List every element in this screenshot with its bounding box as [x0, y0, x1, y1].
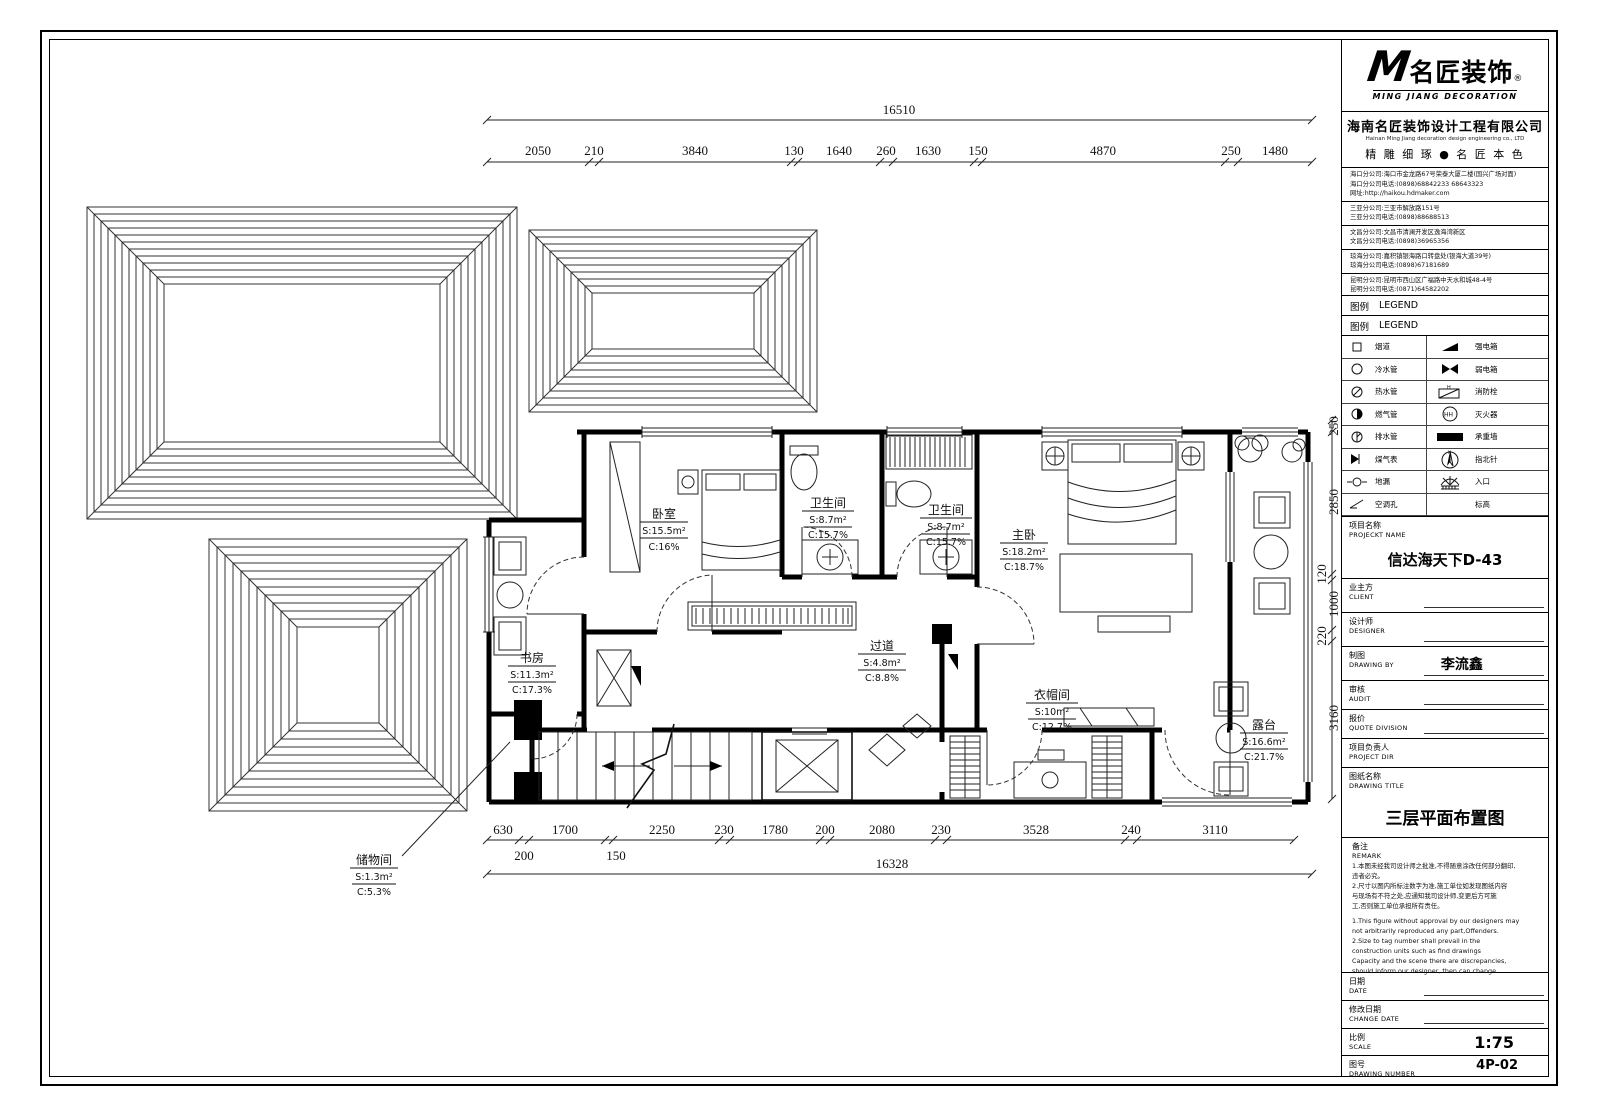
- sheet-outer-frame: 卧室 S:15.5m² C:16% 卫生间 S:8.7m² C:15.7% 卫生…: [40, 30, 1558, 1086]
- field-label-en: CHANGE DATE: [1349, 1015, 1548, 1023]
- field-label-en: DESIGNER: [1349, 627, 1548, 635]
- svg-text:C:8.8%: C:8.8%: [865, 673, 899, 684]
- branch-line: 琼海分公司电话:(0898)67181689: [1350, 261, 1544, 271]
- logo-name: 名匠装饰: [1409, 53, 1513, 89]
- legend-label: 消防栓: [1472, 381, 1548, 404]
- field-label-en: PROJECT DIR: [1349, 753, 1548, 761]
- svg-text:1630: 1630: [915, 143, 941, 158]
- ac-hole-icon: [1342, 494, 1372, 517]
- legend-header-2: 图例 LEGEND: [1342, 316, 1548, 336]
- svg-text:2050: 2050: [525, 143, 551, 158]
- branch-line: 文昌分公司电话:(0898)36965356: [1350, 237, 1544, 247]
- remark-label-en: REMARK: [1352, 852, 1548, 860]
- entrance-icon: [1426, 471, 1472, 494]
- legend-label-cn: 图例: [1350, 319, 1369, 333]
- svg-text:260: 260: [876, 143, 896, 158]
- branch-line: 海口分公司:海口市金龙路67号荣泰大厦二楼(国兴广场对面): [1350, 170, 1544, 180]
- svg-text:2850: 2850: [1326, 489, 1341, 515]
- branch-line: 昆明分公司电话:(0871)64582202: [1350, 285, 1544, 295]
- svg-text:4870: 4870: [1090, 143, 1116, 158]
- field-label-cn: 业主方: [1349, 582, 1548, 593]
- field-client: 业主方 CLIENT: [1342, 579, 1548, 613]
- svg-text:200: 200: [514, 848, 534, 863]
- svg-text:220: 220: [1314, 626, 1329, 646]
- svg-text:3528: 3528: [1023, 822, 1049, 837]
- svg-text:150: 150: [606, 848, 626, 863]
- weak-electric-box-icon: [1426, 359, 1472, 382]
- hot-water-pipe-icon: [1342, 381, 1372, 404]
- svg-text:1640: 1640: [826, 143, 852, 158]
- elevator: [762, 728, 852, 800]
- corridor-rugs: [869, 714, 931, 766]
- svg-text:C:15.7%: C:15.7%: [808, 530, 848, 541]
- svg-text:3160: 3160: [1326, 705, 1341, 731]
- elevation-mark-icon: [1426, 494, 1472, 517]
- svg-text:1000: 1000: [1326, 591, 1341, 617]
- field-label-cn: 图号: [1349, 1059, 1548, 1070]
- svg-text:230: 230: [714, 822, 734, 837]
- svg-text:C:21.7%: C:21.7%: [1244, 752, 1284, 763]
- svg-text:储物间: 储物间: [356, 852, 392, 867]
- svg-text:衣帽间: 衣帽间: [1034, 687, 1070, 702]
- svg-text:HH: HH: [1444, 412, 1453, 419]
- field-label-cn: 项目负责人: [1349, 742, 1548, 753]
- title-block: M 名匠装饰 ® MING JIANG DECORATION 海南名匠装饰设计工…: [1341, 40, 1548, 1076]
- branch-line: 文昌分公司:文昌市清澜开发区逸海湾新区: [1350, 228, 1544, 238]
- field-label-cn: 图纸名称: [1349, 771, 1548, 782]
- field-label-cn: 报价: [1349, 713, 1548, 724]
- legend-label: 热水管: [1372, 381, 1426, 404]
- svg-text:卫生间: 卫生间: [928, 503, 964, 517]
- field-label-en: PROJECKT NAME: [1349, 531, 1548, 539]
- branch-line: 网址:http://haikou.hdmaker.com: [1350, 189, 1544, 199]
- staircase: [539, 724, 752, 808]
- company-name-en: Hainan Ming Jiang decoration design engi…: [1342, 136, 1548, 142]
- field-label-cn: 比例: [1349, 1032, 1548, 1043]
- svg-text:250: 250: [1221, 143, 1241, 158]
- field-designer: 设计师 DESIGNER: [1342, 613, 1548, 647]
- legend-label: 灭火器: [1472, 404, 1548, 427]
- branch-offices: 海口分公司:海口市金龙路67号荣泰大厦二楼(国兴广场对面) 海口分公司电话:(0…: [1342, 168, 1548, 296]
- svg-text:书房: 书房: [520, 650, 544, 665]
- company-info: 海南名匠装饰设计工程有限公司 Hainan Ming Jiang decorat…: [1342, 112, 1548, 168]
- ceiling-motif-top: [529, 230, 817, 412]
- svg-text:S:18.2m²: S:18.2m²: [1002, 547, 1046, 558]
- company-slogan: 精 雕 细 琢 ● 名 匠 本 色: [1342, 146, 1548, 162]
- company-logo: M 名匠装饰 ® MING JIANG DECORATION: [1342, 40, 1548, 112]
- dim-right: 250 2850 120 1000 220 3160: [1314, 416, 1341, 803]
- cloakroom-furniture: [950, 736, 1122, 798]
- field-label-en: DRAWING NUMBER: [1349, 1070, 1548, 1078]
- svg-text:N: N: [1448, 450, 1451, 455]
- bathroom1-fixtures: [790, 446, 858, 574]
- field-audit: 审核 AUDIT: [1342, 681, 1548, 710]
- project-name-value: 信达海天下D-43: [1342, 549, 1548, 570]
- legend-label: 空调孔: [1372, 494, 1426, 517]
- gas-pipe-icon: [1342, 404, 1372, 427]
- drawing-title-value: 三层平面布置图: [1342, 804, 1548, 829]
- field-label-cn: 设计师: [1349, 616, 1548, 627]
- svg-text:240: 240: [1121, 822, 1141, 837]
- field-label-en: DRAWING TITLE: [1349, 782, 1548, 790]
- svg-text:S:8.7m²: S:8.7m²: [927, 522, 965, 533]
- strong-electric-box-icon: [1426, 336, 1472, 359]
- branch-group: 三亚分公司:三亚市解放路151号 三亚分公司电话:(0898)88688513: [1342, 202, 1548, 226]
- field-label-en: CLIENT: [1349, 593, 1548, 601]
- svg-text:150: 150: [968, 143, 988, 158]
- registered-mark-icon: ®: [1513, 74, 1522, 84]
- svg-text:2250: 2250: [649, 822, 675, 837]
- svg-text:120: 120: [1314, 564, 1329, 584]
- branch-line: 琼海分公司:嘉积镇银海路口转盘处(银海大道39号): [1350, 252, 1544, 262]
- remark-label-cn: 备注: [1352, 841, 1548, 852]
- svg-text:S:16.6m²: S:16.6m²: [1242, 737, 1286, 748]
- flue-icon: [1342, 336, 1372, 359]
- legend-label: 指北针: [1472, 449, 1548, 472]
- svg-text:3110: 3110: [1202, 822, 1228, 837]
- cold-water-pipe-icon: [1342, 359, 1372, 382]
- legend-label: 承重墙: [1472, 426, 1548, 449]
- svg-text:C:5.3%: C:5.3%: [357, 887, 391, 898]
- field-quote: 报价 QUOTE DIVISION: [1342, 710, 1548, 739]
- branch-line: 三亚分公司电话:(0898)88688513: [1350, 213, 1544, 223]
- field-label-en: DATE: [1349, 987, 1548, 995]
- sheet-inner-frame: 卧室 S:15.5m² C:16% 卫生间 S:8.7m² C:15.7% 卫生…: [49, 39, 1549, 1077]
- svg-text:16510: 16510: [883, 102, 916, 117]
- drawing-sheet-page: 卧室 S:15.5m² C:16% 卫生间 S:8.7m² C:15.7% 卫生…: [0, 0, 1600, 1120]
- svg-text:1780: 1780: [762, 822, 788, 837]
- remark-text-cn: 1.本图未经我司设计师之批准,不得随意涂改任何部分翻印, 违者必究。 2.尺寸以…: [1342, 860, 1548, 911]
- scale-value: 1:75: [1474, 1033, 1514, 1052]
- svg-text:卫生间: 卫生间: [810, 496, 846, 510]
- dim-top-total: 16510: [483, 102, 1316, 124]
- study-furniture: [494, 537, 526, 655]
- gas-meter-icon: [1342, 449, 1372, 472]
- field-label-cn: 修改日期: [1349, 1004, 1548, 1015]
- legend-header: 图例 LEGEND: [1342, 296, 1548, 316]
- load-bearing-wall-icon: [1426, 426, 1472, 449]
- legend-label-en: LEGEND: [1379, 320, 1418, 331]
- company-name: 海南名匠装饰设计工程有限公司: [1342, 116, 1548, 135]
- svg-text:S:1.3m²: S:1.3m²: [355, 872, 393, 883]
- svg-text:C:16%: C:16%: [649, 542, 680, 553]
- svg-text:2080: 2080: [869, 822, 895, 837]
- legend-label: 弱电箱: [1472, 359, 1548, 382]
- legend-label: 强电箱: [1472, 336, 1548, 359]
- legend-label-cn: 图例: [1350, 299, 1369, 313]
- svg-text:1700: 1700: [552, 822, 578, 837]
- windows: [483, 426, 1312, 806]
- svg-text:1480: 1480: [1262, 143, 1288, 158]
- field-label-en: AUDIT: [1349, 695, 1548, 703]
- field-label-cn: 日期: [1349, 976, 1548, 987]
- plan-walls: [489, 432, 1308, 802]
- legend-label: 燃气管: [1372, 404, 1426, 427]
- field-label-en: QUOTE DIVISION: [1349, 724, 1548, 732]
- legend-label: 排水管: [1372, 426, 1426, 449]
- field-date: 日期 DATE: [1342, 973, 1548, 1001]
- branch-group: 昆明分公司:昆明市西山区广福路中天水和城48-4号 昆明分公司电话:(0871)…: [1342, 274, 1548, 297]
- svg-text:C:18.7%: C:18.7%: [1004, 562, 1044, 573]
- fire-extinguisher-icon: HH: [1426, 404, 1472, 427]
- svg-text:S:15.5m²: S:15.5m²: [642, 526, 686, 537]
- branch-group: 文昌分公司:文昌市清澜开发区逸海湾新区 文昌分公司电话:(0898)369653…: [1342, 226, 1548, 250]
- field-project-name: 项目名称 PROJECKT NAME 信达海天下D-43: [1342, 517, 1548, 579]
- field-drawing-by: 制图 DRAWING BY 李流鑫: [1342, 647, 1548, 681]
- field-label-cn: 项目名称: [1349, 520, 1548, 531]
- field-label-en: SCALE: [1349, 1043, 1548, 1051]
- svg-text:130: 130: [784, 143, 804, 158]
- svg-text:210: 210: [584, 143, 604, 158]
- legend-label: 入口: [1472, 471, 1548, 494]
- legend-label: 煤气表: [1372, 449, 1426, 472]
- remark-section: 备注 REMARK 1.本图未经我司设计师之批准,不得随意涂改任何部分翻印, 违…: [1342, 838, 1548, 973]
- master-bedroom-furniture: [1042, 440, 1204, 726]
- svg-text:16328: 16328: [876, 856, 909, 871]
- ceiling-motif-lower: [209, 539, 467, 811]
- field-drawing-title: 图纸名称 DRAWING TITLE 三层平面布置图: [1342, 768, 1548, 838]
- field-project-director: 项目负责人 PROJECT DIR: [1342, 739, 1548, 768]
- logo-english: MING JIANG DECORATION: [1373, 90, 1518, 101]
- ceiling-motif-large: [87, 207, 517, 519]
- field-change-date: 修改日期 CHANGE DATE: [1342, 1001, 1548, 1029]
- north-arrow-icon: N: [1426, 449, 1472, 472]
- svg-text:H: H: [1447, 385, 1451, 391]
- legend-label: 地漏: [1372, 471, 1426, 494]
- fire-hydrant-icon: H: [1426, 381, 1472, 404]
- svg-text:主卧: 主卧: [1012, 528, 1036, 542]
- svg-text:露台: 露台: [1252, 717, 1276, 732]
- field-label-cn: 审核: [1349, 684, 1548, 695]
- legend-label: 标高: [1472, 494, 1548, 517]
- drawing-by-value: 李流鑫: [1441, 654, 1483, 674]
- svg-text:C:15.7%: C:15.7%: [926, 537, 966, 548]
- logo-m-icon: M: [1365, 50, 1412, 84]
- svg-text:C:12.7%: C:12.7%: [1032, 722, 1072, 733]
- legend-label: 冷水管: [1372, 359, 1426, 382]
- branch-line: 海口分公司电话:(0898)68842233 68643323: [1350, 180, 1544, 190]
- branch-line: 昆明分公司:昆明市西山区广福路中天水和城48-4号: [1350, 276, 1544, 286]
- remark-text-en: 1.This figure without approval by our de…: [1342, 915, 1548, 976]
- legend-label-en: LEGEND: [1379, 300, 1418, 311]
- legend-table: 烟道 强电箱 冷水管 弱电箱 热水管 H 消防栓 燃气管 HH 灭火器 排水管: [1342, 336, 1548, 517]
- svg-text:S:8.7m²: S:8.7m²: [809, 515, 847, 526]
- svg-text:200: 200: [815, 822, 835, 837]
- branch-group: 琼海分公司:嘉积镇银海路口转盘处(银海大道39号) 琼海分公司电话:(0898)…: [1342, 250, 1548, 274]
- floor-drain-icon: [1342, 471, 1372, 494]
- drawing-number-value: 4P-02: [1476, 1058, 1518, 1073]
- dim-top-segments: 2050 210 3840 130 1640 260 1630 150 4870…: [483, 143, 1316, 166]
- branch-group: 海口分公司:海口市金龙路67号荣泰大厦二楼(国兴广场对面) 海口分公司电话:(0…: [1342, 168, 1548, 202]
- svg-text:630: 630: [493, 822, 513, 837]
- floor-plan-canvas: 卧室 S:15.5m² C:16% 卫生间 S:8.7m² C:15.7% 卫生…: [50, 40, 1344, 1076]
- field-scale: 比例 SCALE 1:75: [1342, 1029, 1548, 1056]
- drain-pipe-icon: [1342, 426, 1372, 449]
- svg-text:3840: 3840: [682, 143, 708, 158]
- svg-text:C:17.3%: C:17.3%: [512, 685, 552, 696]
- svg-text:230: 230: [931, 822, 951, 837]
- svg-text:卧室: 卧室: [652, 506, 676, 521]
- branch-line: 三亚分公司:三亚市解放路151号: [1350, 204, 1544, 214]
- svg-text:S:11.3m²: S:11.3m²: [510, 670, 554, 681]
- field-drawing-number: 图号 DRAWING NUMBER 4P-02: [1342, 1056, 1548, 1078]
- svg-text:过道: 过道: [870, 639, 894, 653]
- svg-text:S:10m²: S:10m²: [1035, 707, 1070, 718]
- svg-text:S:4.8m²: S:4.8m²: [863, 658, 901, 669]
- legend-label: 烟道: [1372, 336, 1426, 359]
